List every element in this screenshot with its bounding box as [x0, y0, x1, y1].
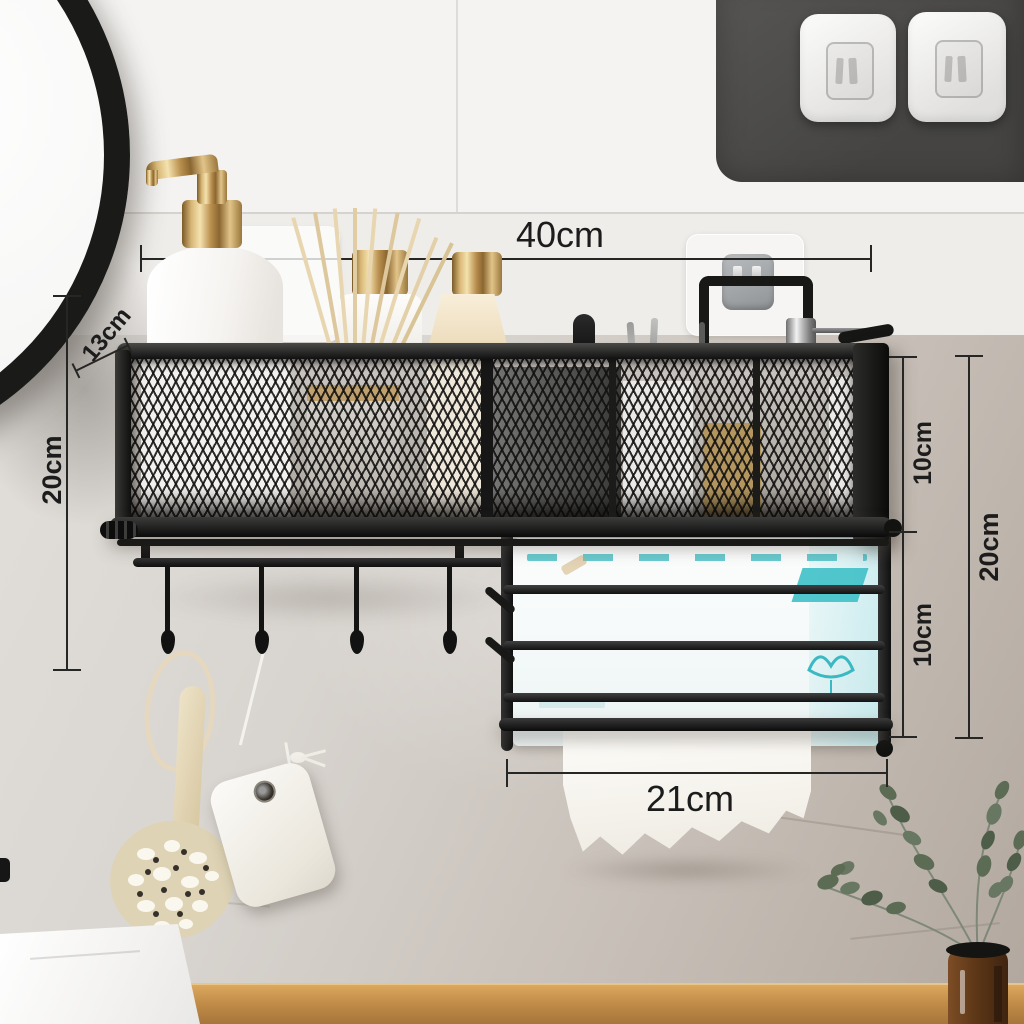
basket-right-panel — [853, 343, 889, 543]
dim-tick — [506, 759, 508, 787]
dim-tick — [886, 759, 888, 787]
dim-label-right-lower-10cm: 10cm — [910, 590, 936, 680]
dim-tick — [870, 245, 872, 272]
pump-bottle-collar — [182, 200, 242, 248]
hook-rod — [165, 566, 170, 638]
tile-grout-line — [456, 0, 458, 212]
basket-top-rail — [117, 343, 889, 359]
tissue-holder-right-frame — [878, 527, 891, 747]
hook-rod — [447, 566, 452, 638]
basket-mesh-region — [131, 359, 855, 521]
rail-end-knob — [884, 519, 902, 537]
wire-mesh — [131, 359, 855, 521]
pad-emboss-mark — [848, 58, 857, 84]
hook-rod — [259, 566, 264, 638]
pump-bottle-stem — [197, 170, 227, 204]
dim-label-left-20cm: 20cm — [39, 426, 65, 514]
basket-under-bar — [117, 539, 889, 546]
dim-tick — [955, 355, 983, 357]
dim-tick — [955, 737, 983, 739]
dim-label-40cm: 40cm — [480, 216, 640, 254]
adhesive-pad — [908, 12, 1006, 122]
pad-emboss-mark — [957, 56, 966, 82]
product-photo-scene: 40cm — [0, 0, 1024, 1024]
pad-emboss-mark — [944, 56, 952, 82]
dim-line — [507, 772, 888, 774]
pump-bottle-spout-tip — [146, 170, 158, 186]
basket-divider — [753, 359, 760, 521]
counter-corner — [0, 924, 200, 1024]
reed-stick — [353, 208, 357, 360]
pad-emboss-mark — [835, 58, 843, 84]
dim-tick — [889, 736, 917, 738]
dim-tick — [889, 356, 917, 358]
holder-front-bar — [503, 693, 885, 702]
dim-line — [968, 356, 970, 738]
adhesive-pad — [800, 14, 896, 122]
dim-tick — [889, 531, 917, 533]
basket-divider — [609, 359, 616, 521]
dim-tick — [140, 245, 142, 272]
dim-tick — [53, 669, 81, 671]
shelf-wall-shadow — [150, 572, 510, 624]
holder-front-bar — [503, 585, 885, 594]
holder-front-bar — [503, 641, 885, 650]
dim-tick — [53, 295, 81, 297]
towel-shadow — [560, 856, 810, 884]
dim-label-right-20cm: 20cm — [976, 502, 1002, 592]
basket-bottom-rail — [109, 517, 893, 537]
rail-end-knob — [100, 521, 138, 539]
dim-label-21cm: 21cm — [600, 779, 780, 819]
counter-vein — [30, 950, 140, 960]
basket-divider — [481, 359, 493, 521]
frame-ball-end — [876, 740, 893, 757]
soap-grommet — [251, 778, 278, 805]
cream-bottle-cap — [452, 252, 502, 296]
holder-bottom-rail — [499, 718, 893, 731]
hook-rail — [133, 558, 509, 567]
mirror-edge-mark — [0, 858, 10, 882]
eucalyptus-plant — [788, 756, 1024, 1024]
dim-label-right-upper-10cm: 10cm — [910, 408, 936, 498]
dim-line — [902, 357, 904, 737]
hook-rod — [354, 566, 359, 638]
basket-left-post — [115, 350, 131, 536]
